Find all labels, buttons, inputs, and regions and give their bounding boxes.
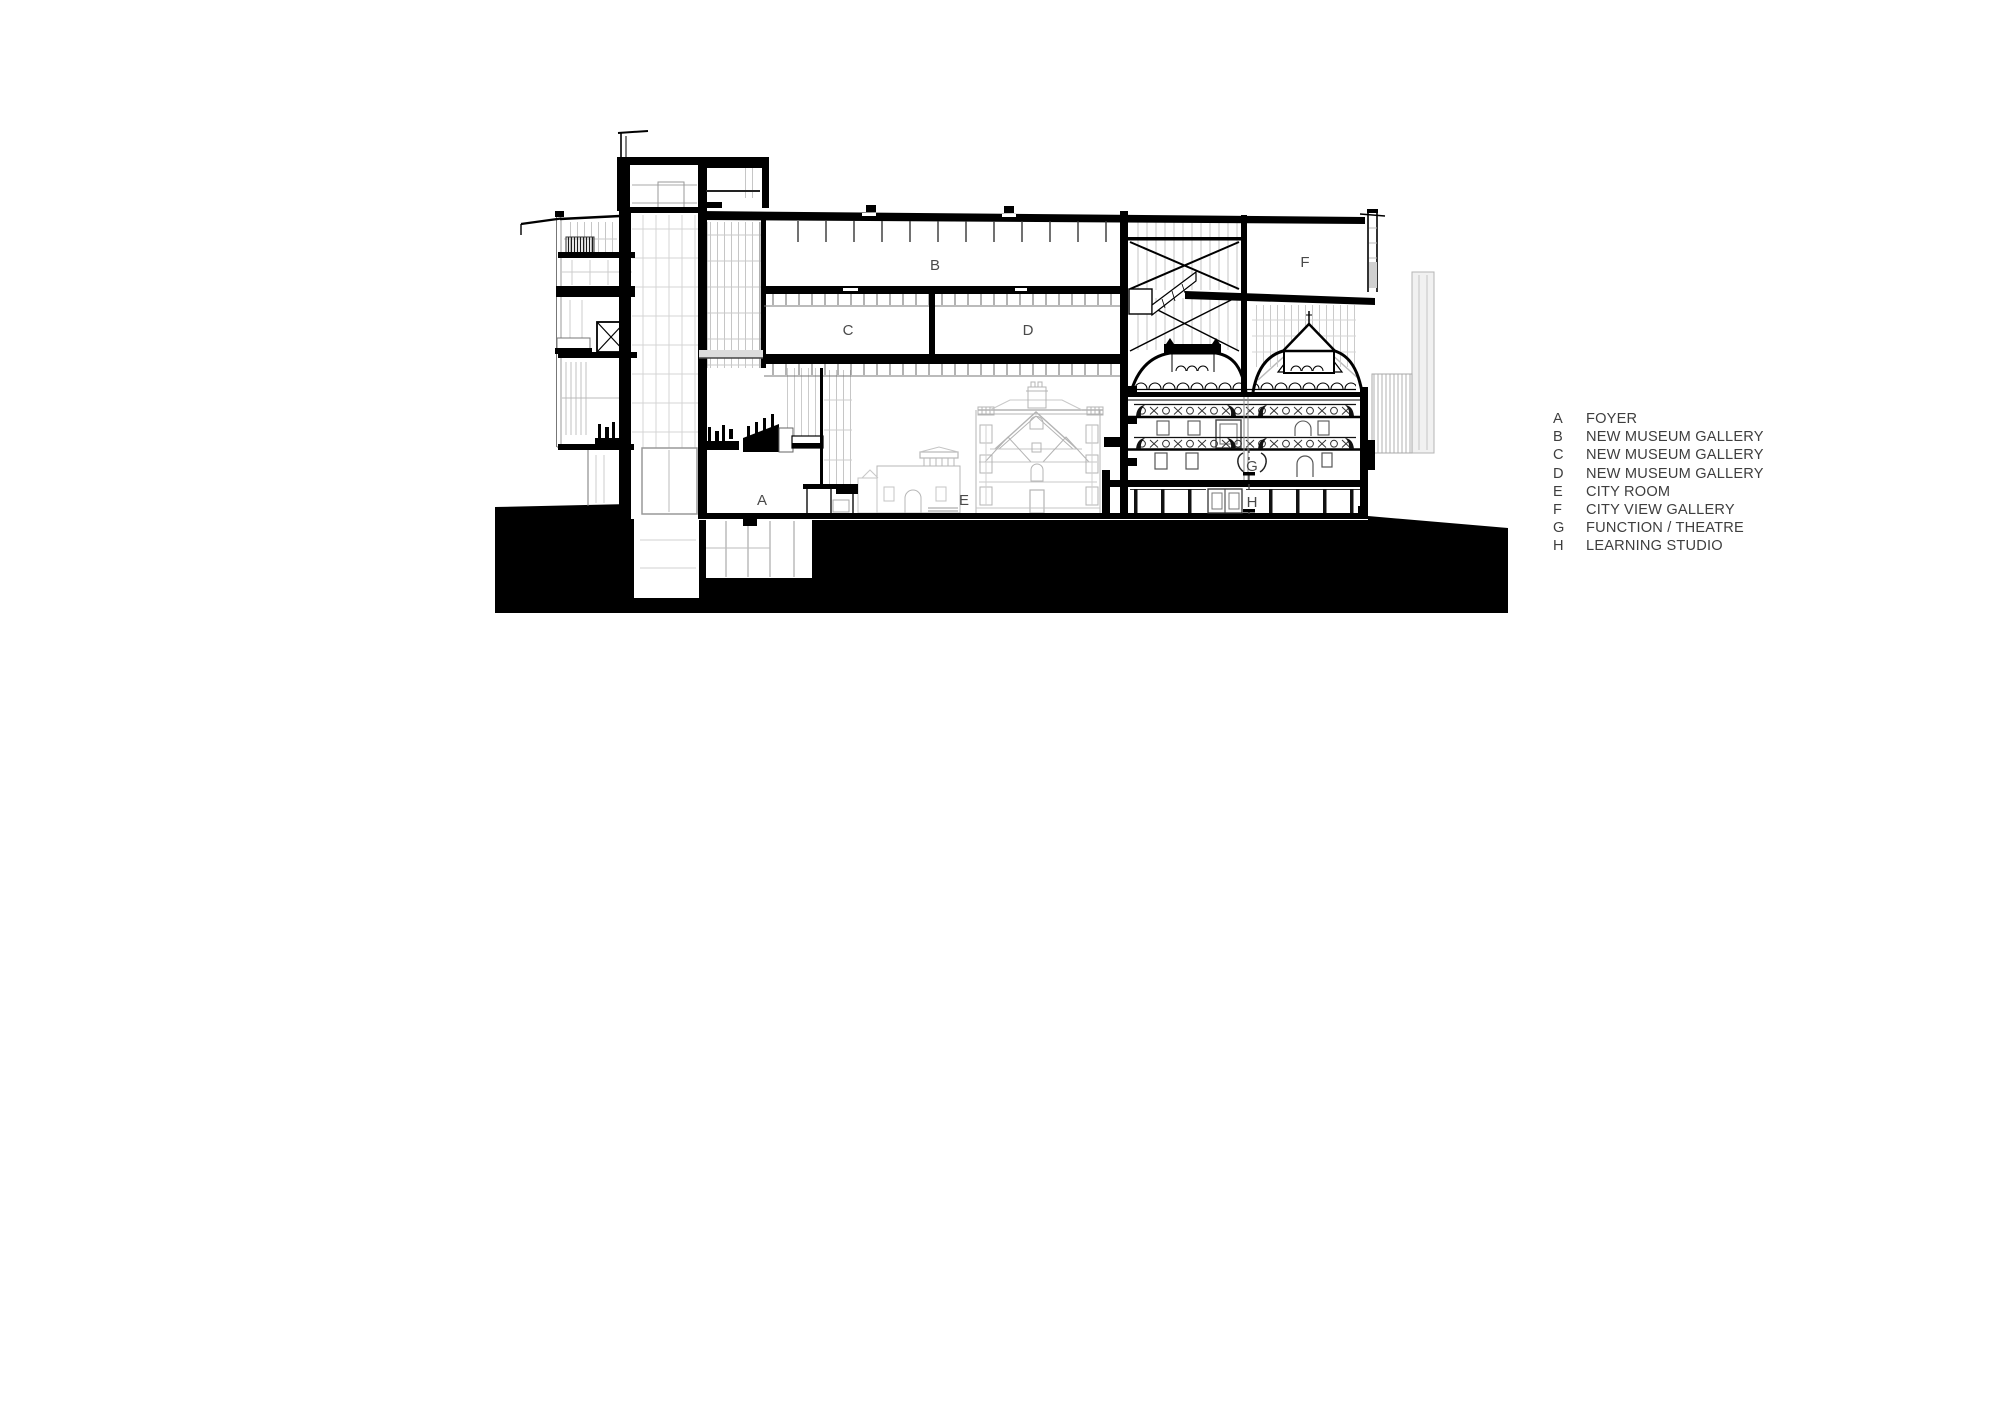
gallery-b bbox=[761, 215, 1128, 368]
rooflight-upstand bbox=[866, 205, 876, 212]
room-label-d: D bbox=[1023, 322, 1034, 339]
auditorium-seats bbox=[705, 414, 779, 452]
legend-row-f: F CITY VIEW GALLERY bbox=[1553, 501, 1764, 519]
legend-key: D bbox=[1553, 465, 1586, 483]
page-canvas: A B C D E F G H A FOYER B NEW MUSEUM GAL… bbox=[0, 0, 2000, 1414]
gallery-cd-floor bbox=[763, 354, 1128, 364]
outbuilding-elevation bbox=[858, 447, 960, 513]
roof-arcade bbox=[1134, 380, 1243, 389]
section-drawing: A B C D E F G H bbox=[0, 0, 2000, 1414]
legend-key: A bbox=[1553, 410, 1586, 428]
legend-row-d: D NEW MUSEUM GALLERY bbox=[1553, 465, 1764, 483]
room-label-g: G bbox=[1246, 458, 1258, 475]
legend-key: C bbox=[1553, 446, 1586, 464]
legend-row-c: C NEW MUSEUM GALLERY bbox=[1553, 446, 1764, 464]
stair-f-wall bbox=[1241, 215, 1247, 392]
foyer-wall-grid bbox=[783, 368, 852, 484]
historic-house-elevation bbox=[976, 382, 1103, 513]
legend-label: CITY VIEW GALLERY bbox=[1586, 501, 1735, 519]
legend-row-g: G FUNCTION / THEATRE bbox=[1553, 519, 1764, 537]
ground-mass bbox=[495, 504, 1508, 613]
legend-label: CITY ROOM bbox=[1586, 483, 1670, 501]
room-label-c: C bbox=[843, 322, 854, 339]
ground-floor-slab bbox=[699, 513, 1368, 519]
gallery-divider-wall bbox=[929, 294, 935, 364]
legend-label: NEW MUSEUM GALLERY bbox=[1586, 428, 1764, 446]
legend-key: F bbox=[1553, 501, 1586, 519]
room-label-a: A bbox=[757, 492, 767, 509]
party-wall bbox=[1120, 211, 1128, 513]
roof-flue bbox=[618, 131, 648, 133]
gallery-b-floor bbox=[763, 286, 1128, 294]
legend-row-h: H LEARNING STUDIO bbox=[1553, 537, 1764, 555]
legend-row-b: B NEW MUSEUM GALLERY bbox=[1553, 428, 1764, 446]
legend-key: H bbox=[1553, 537, 1586, 555]
glazed-slot-grid bbox=[706, 222, 762, 368]
console-bracket bbox=[1238, 453, 1244, 472]
column bbox=[820, 368, 823, 487]
rooflight-upstand bbox=[1004, 206, 1014, 213]
balcony-band-2 bbox=[1128, 438, 1362, 450]
room-label-h: H bbox=[1247, 494, 1258, 511]
console-bracket bbox=[1260, 453, 1266, 472]
legend-label: FOYER bbox=[1586, 410, 1637, 428]
balcony-band-1 bbox=[1128, 405, 1362, 418]
room-label-b: B bbox=[930, 257, 940, 274]
balcony-nose bbox=[1104, 437, 1128, 447]
legend: A FOYER B NEW MUSEUM GALLERY C NEW MUSEU… bbox=[1553, 410, 1764, 556]
roof-penthouse bbox=[699, 161, 769, 208]
legend-label: NEW MUSEUM GALLERY bbox=[1586, 465, 1764, 483]
legend-label: LEARNING STUDIO bbox=[1586, 537, 1723, 555]
legend-key: B bbox=[1553, 428, 1586, 446]
legend-key: G bbox=[1553, 519, 1586, 537]
legend-label: NEW MUSEUM GALLERY bbox=[1586, 446, 1764, 464]
legend-row-a: A FOYER bbox=[1553, 410, 1764, 428]
lift-shaft-grid bbox=[632, 215, 698, 448]
lift-pit bbox=[634, 505, 699, 598]
room-label-e: E bbox=[959, 492, 969, 509]
hanging-rail-ticks bbox=[774, 221, 1116, 242]
legend-label: FUNCTION / THEATRE bbox=[1586, 519, 1744, 537]
stair-landing bbox=[1129, 289, 1152, 314]
legend-key: E bbox=[1553, 483, 1586, 501]
theatre-floor-slab bbox=[1102, 480, 1368, 487]
legend-row-e: E CITY ROOM bbox=[1553, 483, 1764, 501]
reception-desk bbox=[803, 484, 858, 489]
lantern-left-platform bbox=[1164, 344, 1221, 353]
room-label-f: F bbox=[1300, 254, 1309, 271]
